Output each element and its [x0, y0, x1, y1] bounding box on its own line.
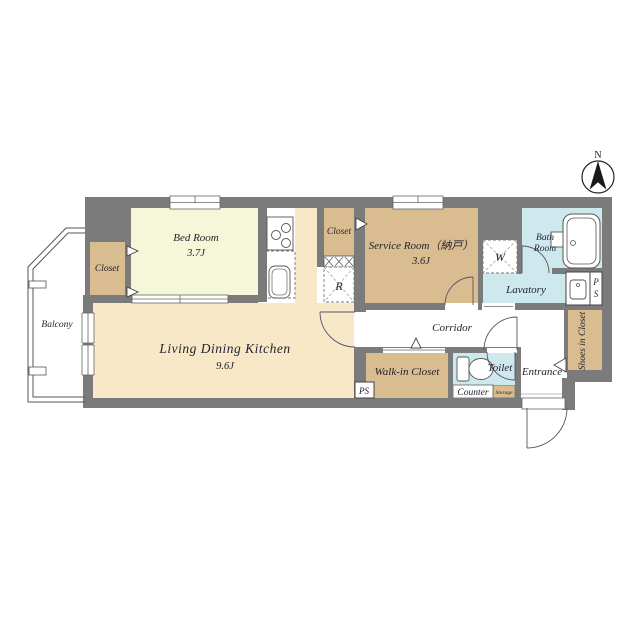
wall-toilet-left: [448, 350, 453, 398]
service-room-size: 3.6J: [411, 256, 431, 267]
walk-in-closet-opening: [383, 348, 445, 353]
wall-top: [85, 197, 612, 208]
entrance-label: Entrance: [521, 366, 562, 378]
wall-closet-left: [85, 242, 90, 298]
wall-duct-chunk: [478, 197, 522, 240]
balcony-rail-post: [29, 367, 46, 375]
toilet-label: Toilet: [488, 362, 514, 374]
refrigerator-label: R: [334, 279, 343, 293]
compass-icon: N: [582, 150, 614, 193]
balcony-rail-post: [29, 281, 46, 288]
counter-label: Counter: [457, 388, 488, 398]
vent-hatch: [324, 256, 354, 267]
bedroom-size: 3.7J: [186, 248, 206, 259]
wall-right: [602, 197, 612, 382]
ldk-label: Living Dining Kitchen: [158, 341, 290, 356]
floor-plan-canvas: N Bed Room 3.7J Closet Closet Service Ro…: [0, 0, 640, 640]
balcony-outer-rail: [28, 228, 85, 402]
wall-bath-left: [517, 240, 522, 274]
bedroom-label: Bed Room: [173, 232, 219, 244]
pipe-space-bottom-label: PS: [358, 386, 369, 396]
wall-kitchen-closet: [317, 197, 324, 267]
pipe-space-right-label-p: P: [592, 277, 599, 287]
washbasin-icon: [566, 272, 590, 305]
corridor-label: Corridor: [432, 322, 472, 334]
pipe-space-right-label-s: S: [594, 289, 599, 299]
washer-label: W: [495, 250, 506, 264]
lavatory-label: Lavatory: [505, 284, 546, 296]
storage-label: Storage: [495, 390, 513, 396]
wall-service-right: [478, 240, 483, 303]
entrance-door-swing: [527, 408, 567, 448]
shoes-closet-label: Shoes in Closet: [578, 311, 588, 370]
compass-north-label: N: [594, 150, 601, 161]
wall-top-left-chunk: [85, 197, 128, 242]
balcony-outline: [28, 228, 85, 402]
walk-in-closet-label: Walk-in Closet: [375, 366, 441, 378]
ldk-size: 9.6J: [216, 361, 235, 372]
floor-plan-page: N Bed Room 3.7J Closet Closet Service Ro…: [0, 0, 640, 640]
service-closet-label: Closet: [327, 227, 352, 237]
ldk-floor-kitchen-strip: [295, 208, 317, 303]
ldk-door-opening: [354, 312, 366, 347]
balcony-label: Balcony: [41, 320, 73, 330]
bath-room-label-2: Room: [533, 244, 556, 254]
bedroom-closet-label: Closet: [95, 264, 120, 274]
wall-toilet-entrance: [515, 348, 521, 402]
wall-service-left: [354, 197, 365, 310]
service-room-label: Service Room（納戸）: [369, 239, 474, 252]
entrance-step: [522, 398, 565, 409]
wall-bottom: [83, 398, 523, 408]
toilet-door-opening: [487, 348, 517, 353]
bath-room-label-1: Bath: [536, 233, 554, 243]
